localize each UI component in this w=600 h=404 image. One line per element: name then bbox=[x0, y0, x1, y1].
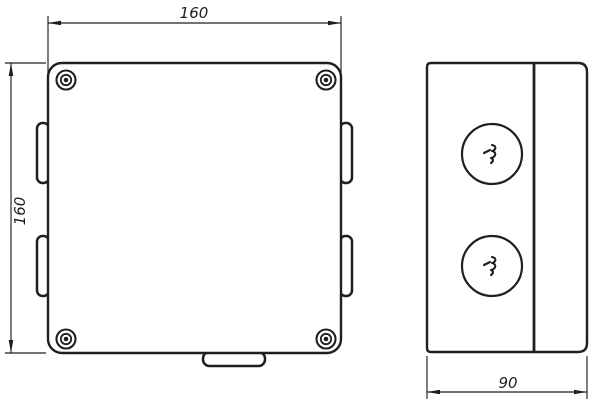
screw-top-left bbox=[57, 71, 76, 90]
arrowhead-right-icon bbox=[328, 21, 341, 26]
arrowhead-right-icon bbox=[574, 390, 587, 395]
enclosure-front-outline bbox=[48, 63, 341, 353]
knockout-circle bbox=[462, 236, 522, 296]
side-view bbox=[427, 63, 587, 352]
junction-box-drawing: 160 160 bbox=[0, 0, 600, 404]
knockout-circle bbox=[462, 124, 522, 184]
dimension-front-height: 160 bbox=[5, 63, 46, 353]
dim-label-front-width: 160 bbox=[180, 4, 209, 22]
arrowhead-bottom-icon bbox=[9, 340, 14, 353]
screw-center-dot bbox=[64, 78, 69, 83]
dim-label-front-height: 160 bbox=[11, 197, 29, 226]
screw-bottom-left bbox=[57, 330, 76, 349]
cable-entry-knockout-top bbox=[462, 124, 522, 184]
technical-drawing-canvas: 160 160 bbox=[0, 0, 600, 404]
arrowhead-left-icon bbox=[427, 390, 440, 395]
dimension-side-depth: 90 bbox=[427, 356, 587, 399]
screw-bottom-right bbox=[317, 330, 336, 349]
screw-center-dot bbox=[324, 337, 329, 342]
cable-entry-knockout-bottom bbox=[462, 236, 522, 296]
dim-label-side-depth: 90 bbox=[498, 374, 517, 392]
arrowhead-top-icon bbox=[9, 63, 14, 76]
screw-center-dot bbox=[64, 337, 69, 342]
screw-top-right bbox=[317, 71, 336, 90]
screw-center-dot bbox=[324, 78, 329, 83]
arrowhead-left-icon bbox=[48, 21, 61, 26]
enclosure-side-outline bbox=[427, 63, 587, 352]
front-view bbox=[37, 63, 352, 366]
